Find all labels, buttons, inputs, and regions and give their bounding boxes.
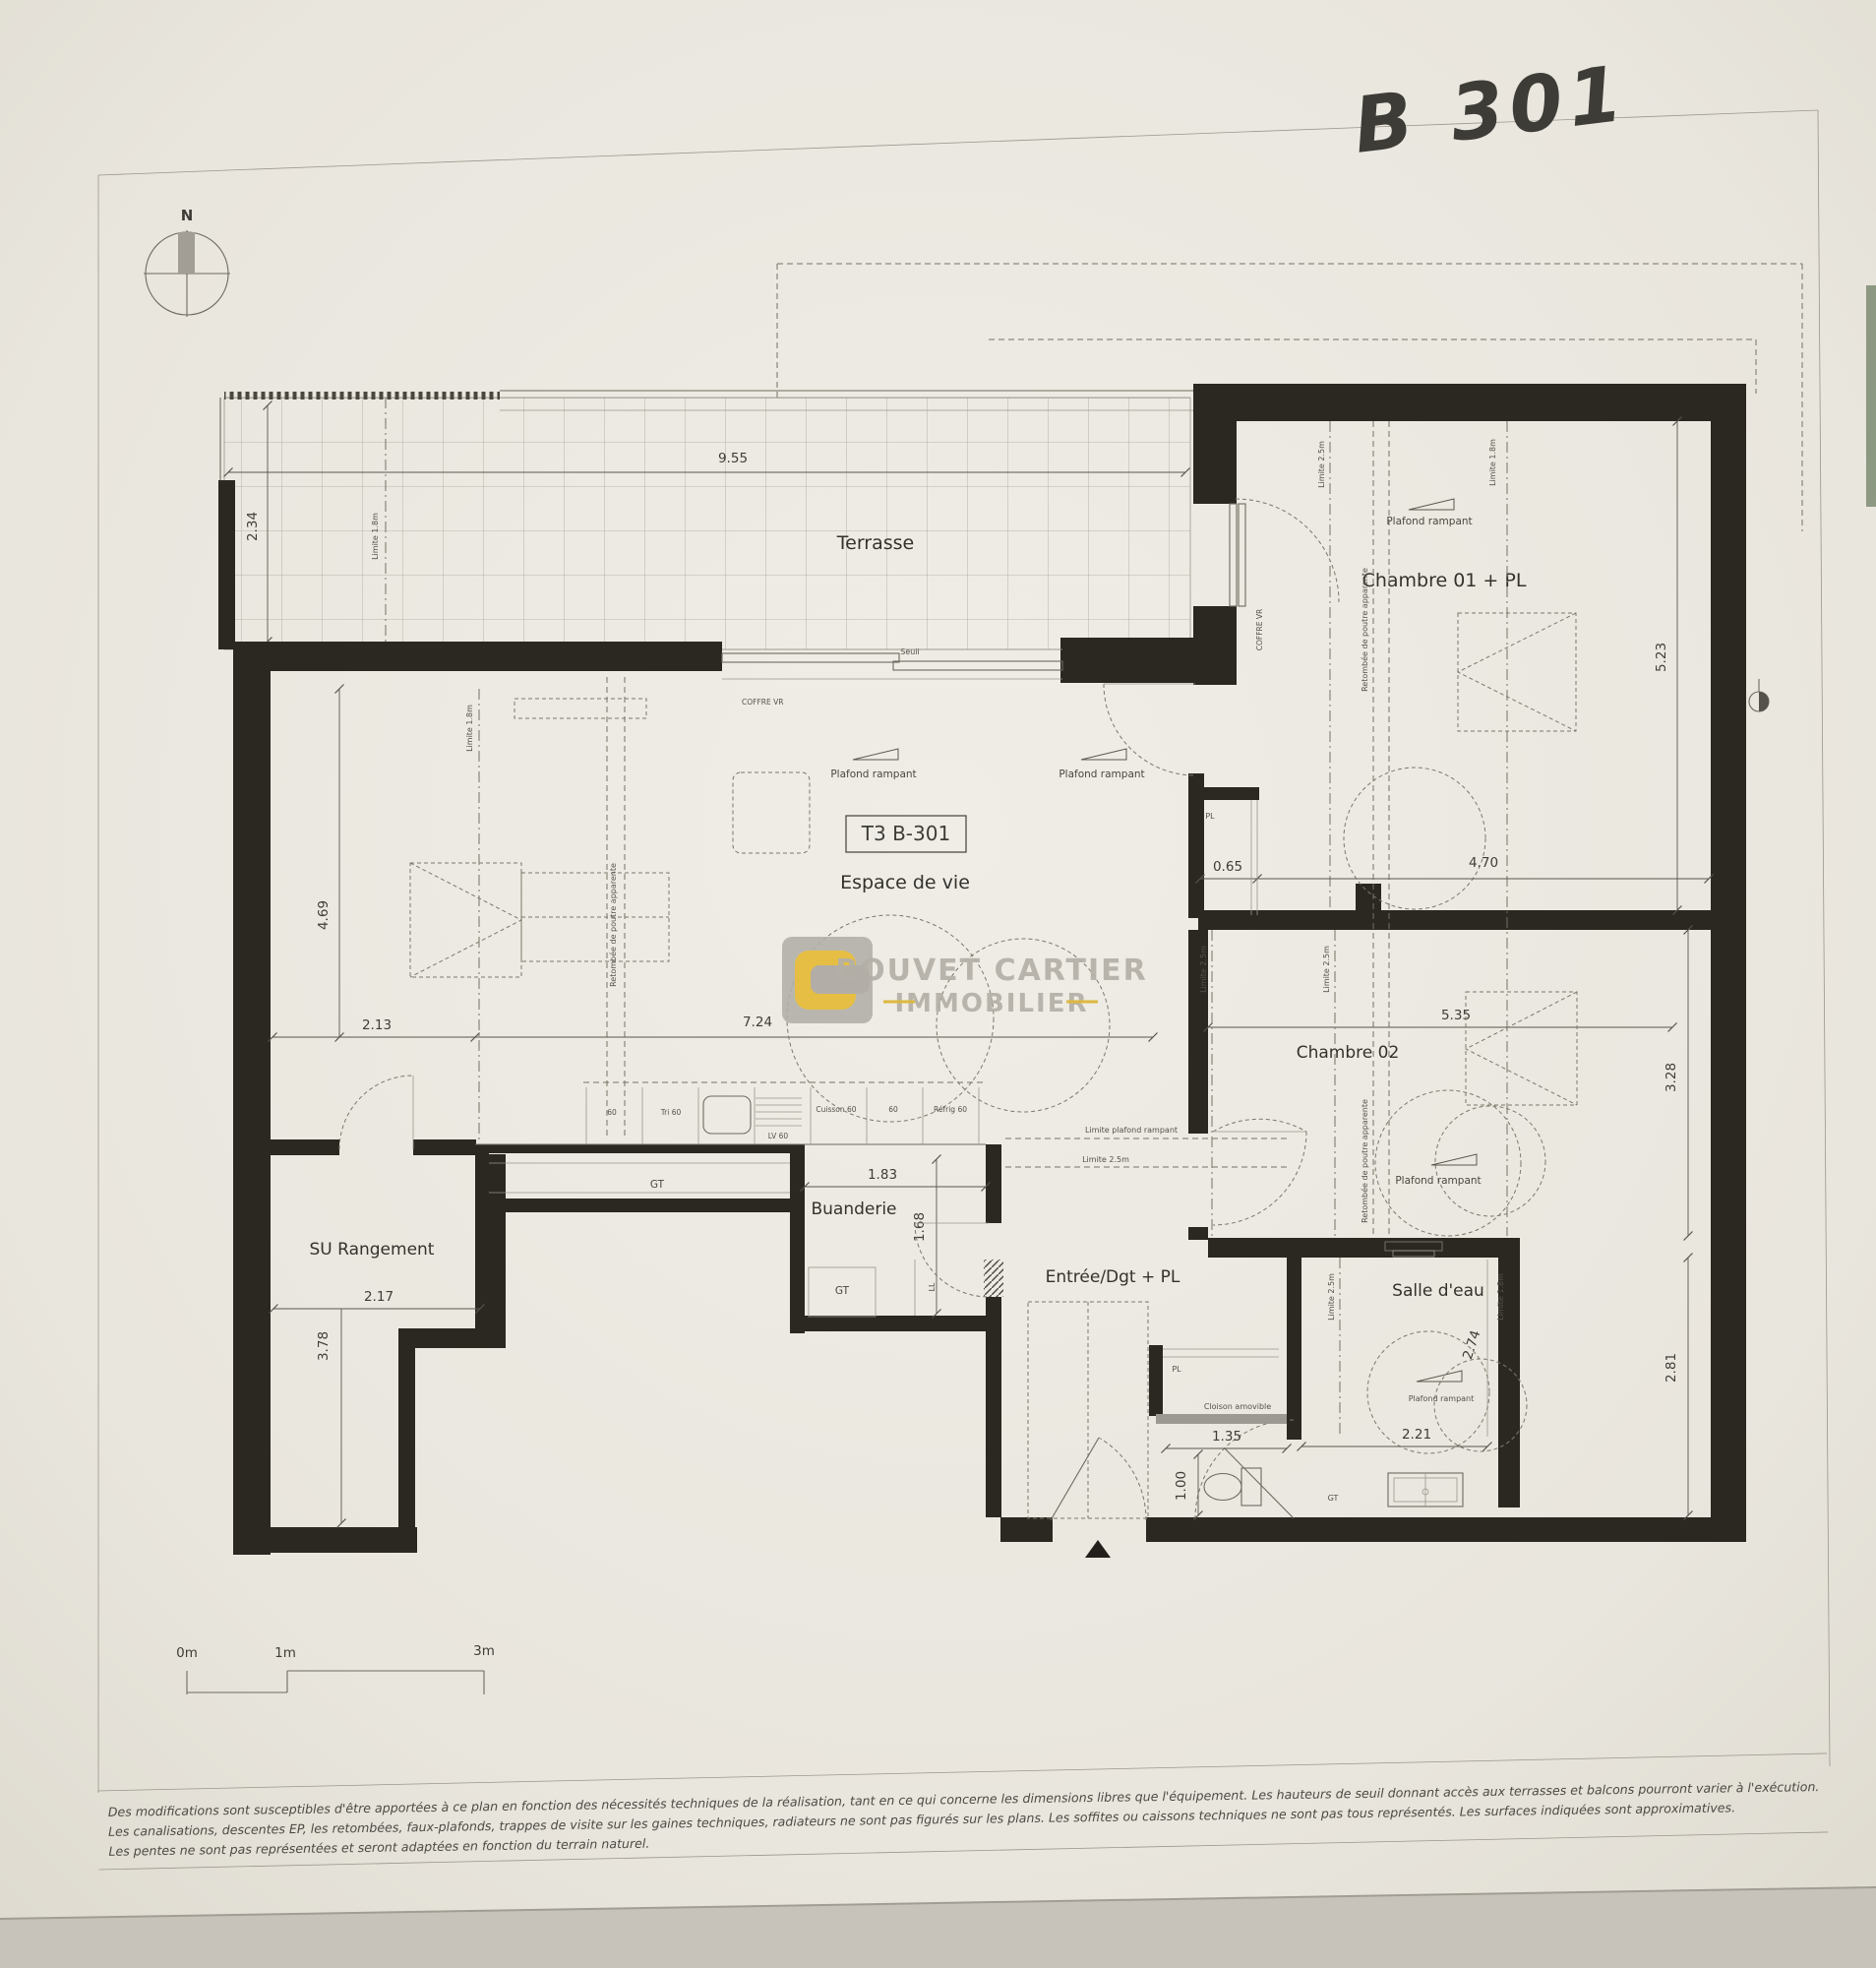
unit-label: T3 B-301 bbox=[861, 822, 950, 845]
watermark-line1: BOUVET CARTIER bbox=[835, 953, 1148, 988]
living-seg2-dim: 7.24 bbox=[743, 1015, 772, 1030]
terrace-width-dim: 9.55 bbox=[718, 451, 748, 466]
north-needle-icon bbox=[178, 232, 195, 274]
chambre01-name: Chambre 01 + PL bbox=[1362, 570, 1527, 591]
scanned-floor-plan-photo: { "annotation": { "handwritten_label": "… bbox=[0, 0, 1876, 1968]
buanderie-depth-dim: 1.68 bbox=[912, 1212, 928, 1242]
retombee-c02: Retombée de poutre apparente bbox=[1360, 1099, 1369, 1223]
wc-depth-dim: 1.00 bbox=[1174, 1471, 1189, 1501]
limite25-c02a: Limite 2.5m bbox=[1199, 946, 1208, 993]
rangement-width-dim: 2.17 bbox=[364, 1289, 393, 1305]
limite25-c02b: Limite 2.5m bbox=[1322, 946, 1331, 993]
terrace-limite-label: Limite 1.8m bbox=[371, 513, 380, 560]
living-seg1-dim: 2.13 bbox=[362, 1017, 392, 1033]
scale-1m: 1m bbox=[274, 1645, 296, 1661]
chambre02-lower-dim: 2.81 bbox=[1664, 1353, 1679, 1383]
buanderie-name: Buanderie bbox=[811, 1199, 896, 1219]
coffre-vr-label: COFFRE VR bbox=[742, 698, 783, 707]
scale-0m: 0m bbox=[176, 1645, 198, 1661]
north-label: N bbox=[181, 207, 194, 224]
terrace: Limite 1.8m Terrasse Seuil 9.55 2.34 bbox=[218, 391, 1193, 656]
chambre01-height-dim: 5.23 bbox=[1654, 643, 1669, 672]
espace-de-vie-name: Espace de vie bbox=[840, 872, 970, 893]
wc-width-dim: 1.35 bbox=[1212, 1429, 1241, 1445]
plafond-rampant-c02: Plafond rampant bbox=[1395, 1175, 1481, 1187]
chambre02-width-dim: 5.35 bbox=[1441, 1008, 1471, 1023]
kitchen-cuisson: Cuisson 60 bbox=[816, 1105, 856, 1114]
limite-plafond-rampant-label: Limite plafond rampant bbox=[1085, 1126, 1178, 1135]
limite25-sde: Limite 2.5m bbox=[1327, 1273, 1336, 1321]
terrace-depth-dim: 2.34 bbox=[245, 512, 261, 541]
entree-pl-label: PL bbox=[1172, 1365, 1181, 1374]
chambre01-width-dim: 4.70 bbox=[1469, 855, 1498, 871]
terrace-tile-grid bbox=[224, 398, 1190, 649]
gt-label-2: GT bbox=[835, 1285, 850, 1297]
retombee-c01: Retombée de poutre apparente bbox=[1360, 568, 1369, 692]
plafond-rampant-c01: Plafond rampant bbox=[1386, 516, 1472, 527]
watermark-line2: IMMOBILIER bbox=[894, 989, 1088, 1018]
limite18-sde: Limite 1.8m bbox=[1496, 1273, 1505, 1321]
salle-deau-width-dim: 2.21 bbox=[1402, 1427, 1431, 1443]
chambre02-name: Chambre 02 bbox=[1297, 1043, 1400, 1063]
kitchen-lv: LV 60 bbox=[768, 1132, 789, 1140]
salle-deau-name: Salle d'eau bbox=[1392, 1281, 1484, 1301]
rangement-depth-dim: 3.78 bbox=[316, 1331, 332, 1361]
gt-label-3: GT bbox=[1328, 1494, 1339, 1503]
kitchen-60a: 60 bbox=[607, 1108, 617, 1117]
coffre-vr-label-2: COFFRE VR bbox=[1255, 609, 1264, 650]
limite25-hall: Limite 2.5m bbox=[1082, 1155, 1129, 1164]
plafond-rampant-living: Plafond rampant bbox=[830, 769, 916, 780]
cloison-amovible-label: Cloison amovible bbox=[1204, 1402, 1271, 1411]
background-object bbox=[1866, 285, 1876, 507]
seuil-label: Seuil bbox=[900, 647, 920, 656]
limite25-c01: Limite 2.5m bbox=[1317, 441, 1326, 488]
plafond-rampant-hall: Plafond rampant bbox=[1059, 769, 1144, 780]
gt-label-1: GT bbox=[650, 1179, 665, 1191]
floor-plan-svg: B 301 N Limite 1.8m Terrasse Seuil 9.55 … bbox=[0, 0, 1876, 1968]
rangement-name: SU Rangement bbox=[310, 1240, 435, 1260]
living-height-dim: 4.69 bbox=[316, 900, 332, 930]
terrace-name: Terrasse bbox=[836, 532, 915, 554]
cloison-amovible-wall bbox=[1156, 1414, 1287, 1424]
chambre02-height-dim: 3.28 bbox=[1664, 1063, 1679, 1092]
pl-width-dim: 0.65 bbox=[1213, 859, 1242, 875]
terrace-edge-hatch bbox=[224, 392, 500, 402]
kitchen-60b: 60 bbox=[888, 1105, 898, 1114]
buanderie-width-dim: 1.83 bbox=[868, 1167, 897, 1183]
kitchen-tri: Tri 60 bbox=[660, 1108, 682, 1117]
plafond-rampant-sde: Plafond rampant bbox=[1409, 1394, 1475, 1403]
entree-name: Entrée/Dgt + PL bbox=[1046, 1267, 1180, 1287]
ll-label: LL bbox=[928, 1282, 937, 1291]
limite18-c01: Limite 1.8m bbox=[1488, 439, 1497, 486]
limite18-living: Limite 1.8m bbox=[465, 705, 474, 752]
retombee-living: Retombée de poutre apparente bbox=[608, 863, 618, 987]
scale-3m: 3m bbox=[473, 1643, 495, 1659]
pl-closet-label: PL bbox=[1205, 812, 1215, 821]
hatched-wall-section bbox=[984, 1260, 1003, 1297]
